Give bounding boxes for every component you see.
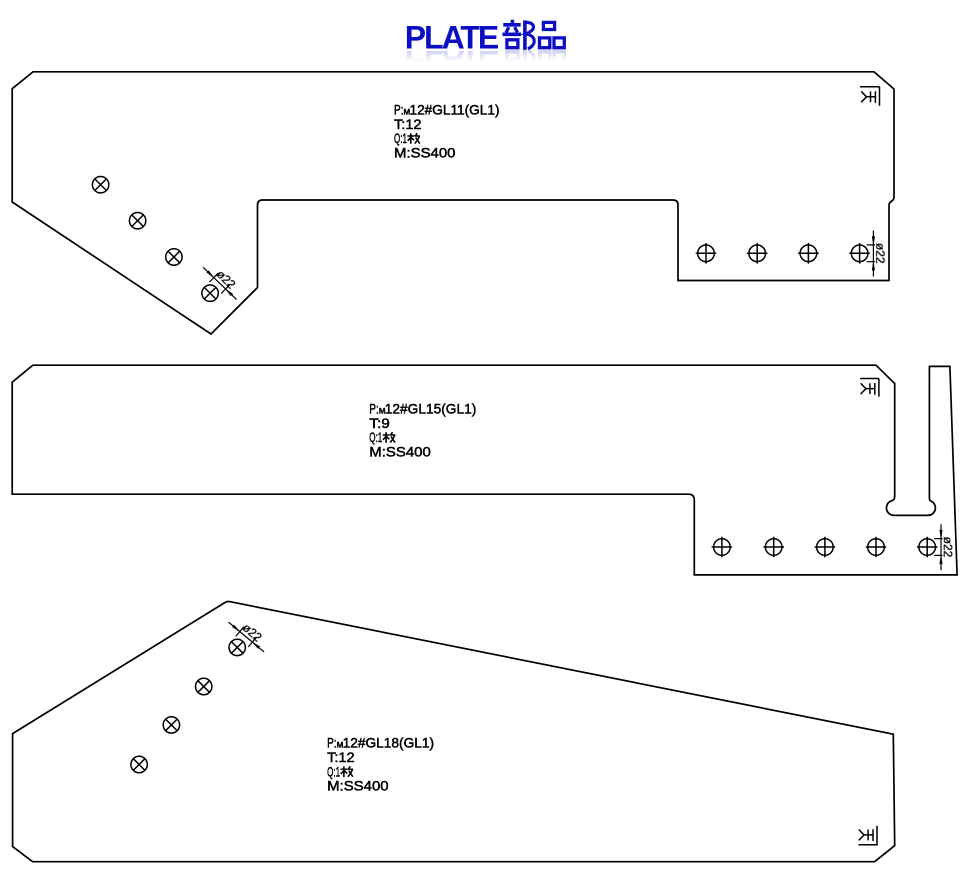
- svg-text:M:SS400: M:SS400: [394, 144, 456, 160]
- svg-text:12#GL15(GL1): 12#GL15(GL1): [385, 401, 477, 417]
- svg-text:M:SS400: M:SS400: [369, 443, 431, 459]
- svg-text:M:SS400: M:SS400: [327, 778, 389, 794]
- svg-text:12#GL18(GL1): 12#GL18(GL1): [343, 735, 435, 751]
- svg-text:PLATE: PLATE: [405, 19, 500, 55]
- svg-text:12#GL11(GL1): 12#GL11(GL1): [410, 102, 500, 118]
